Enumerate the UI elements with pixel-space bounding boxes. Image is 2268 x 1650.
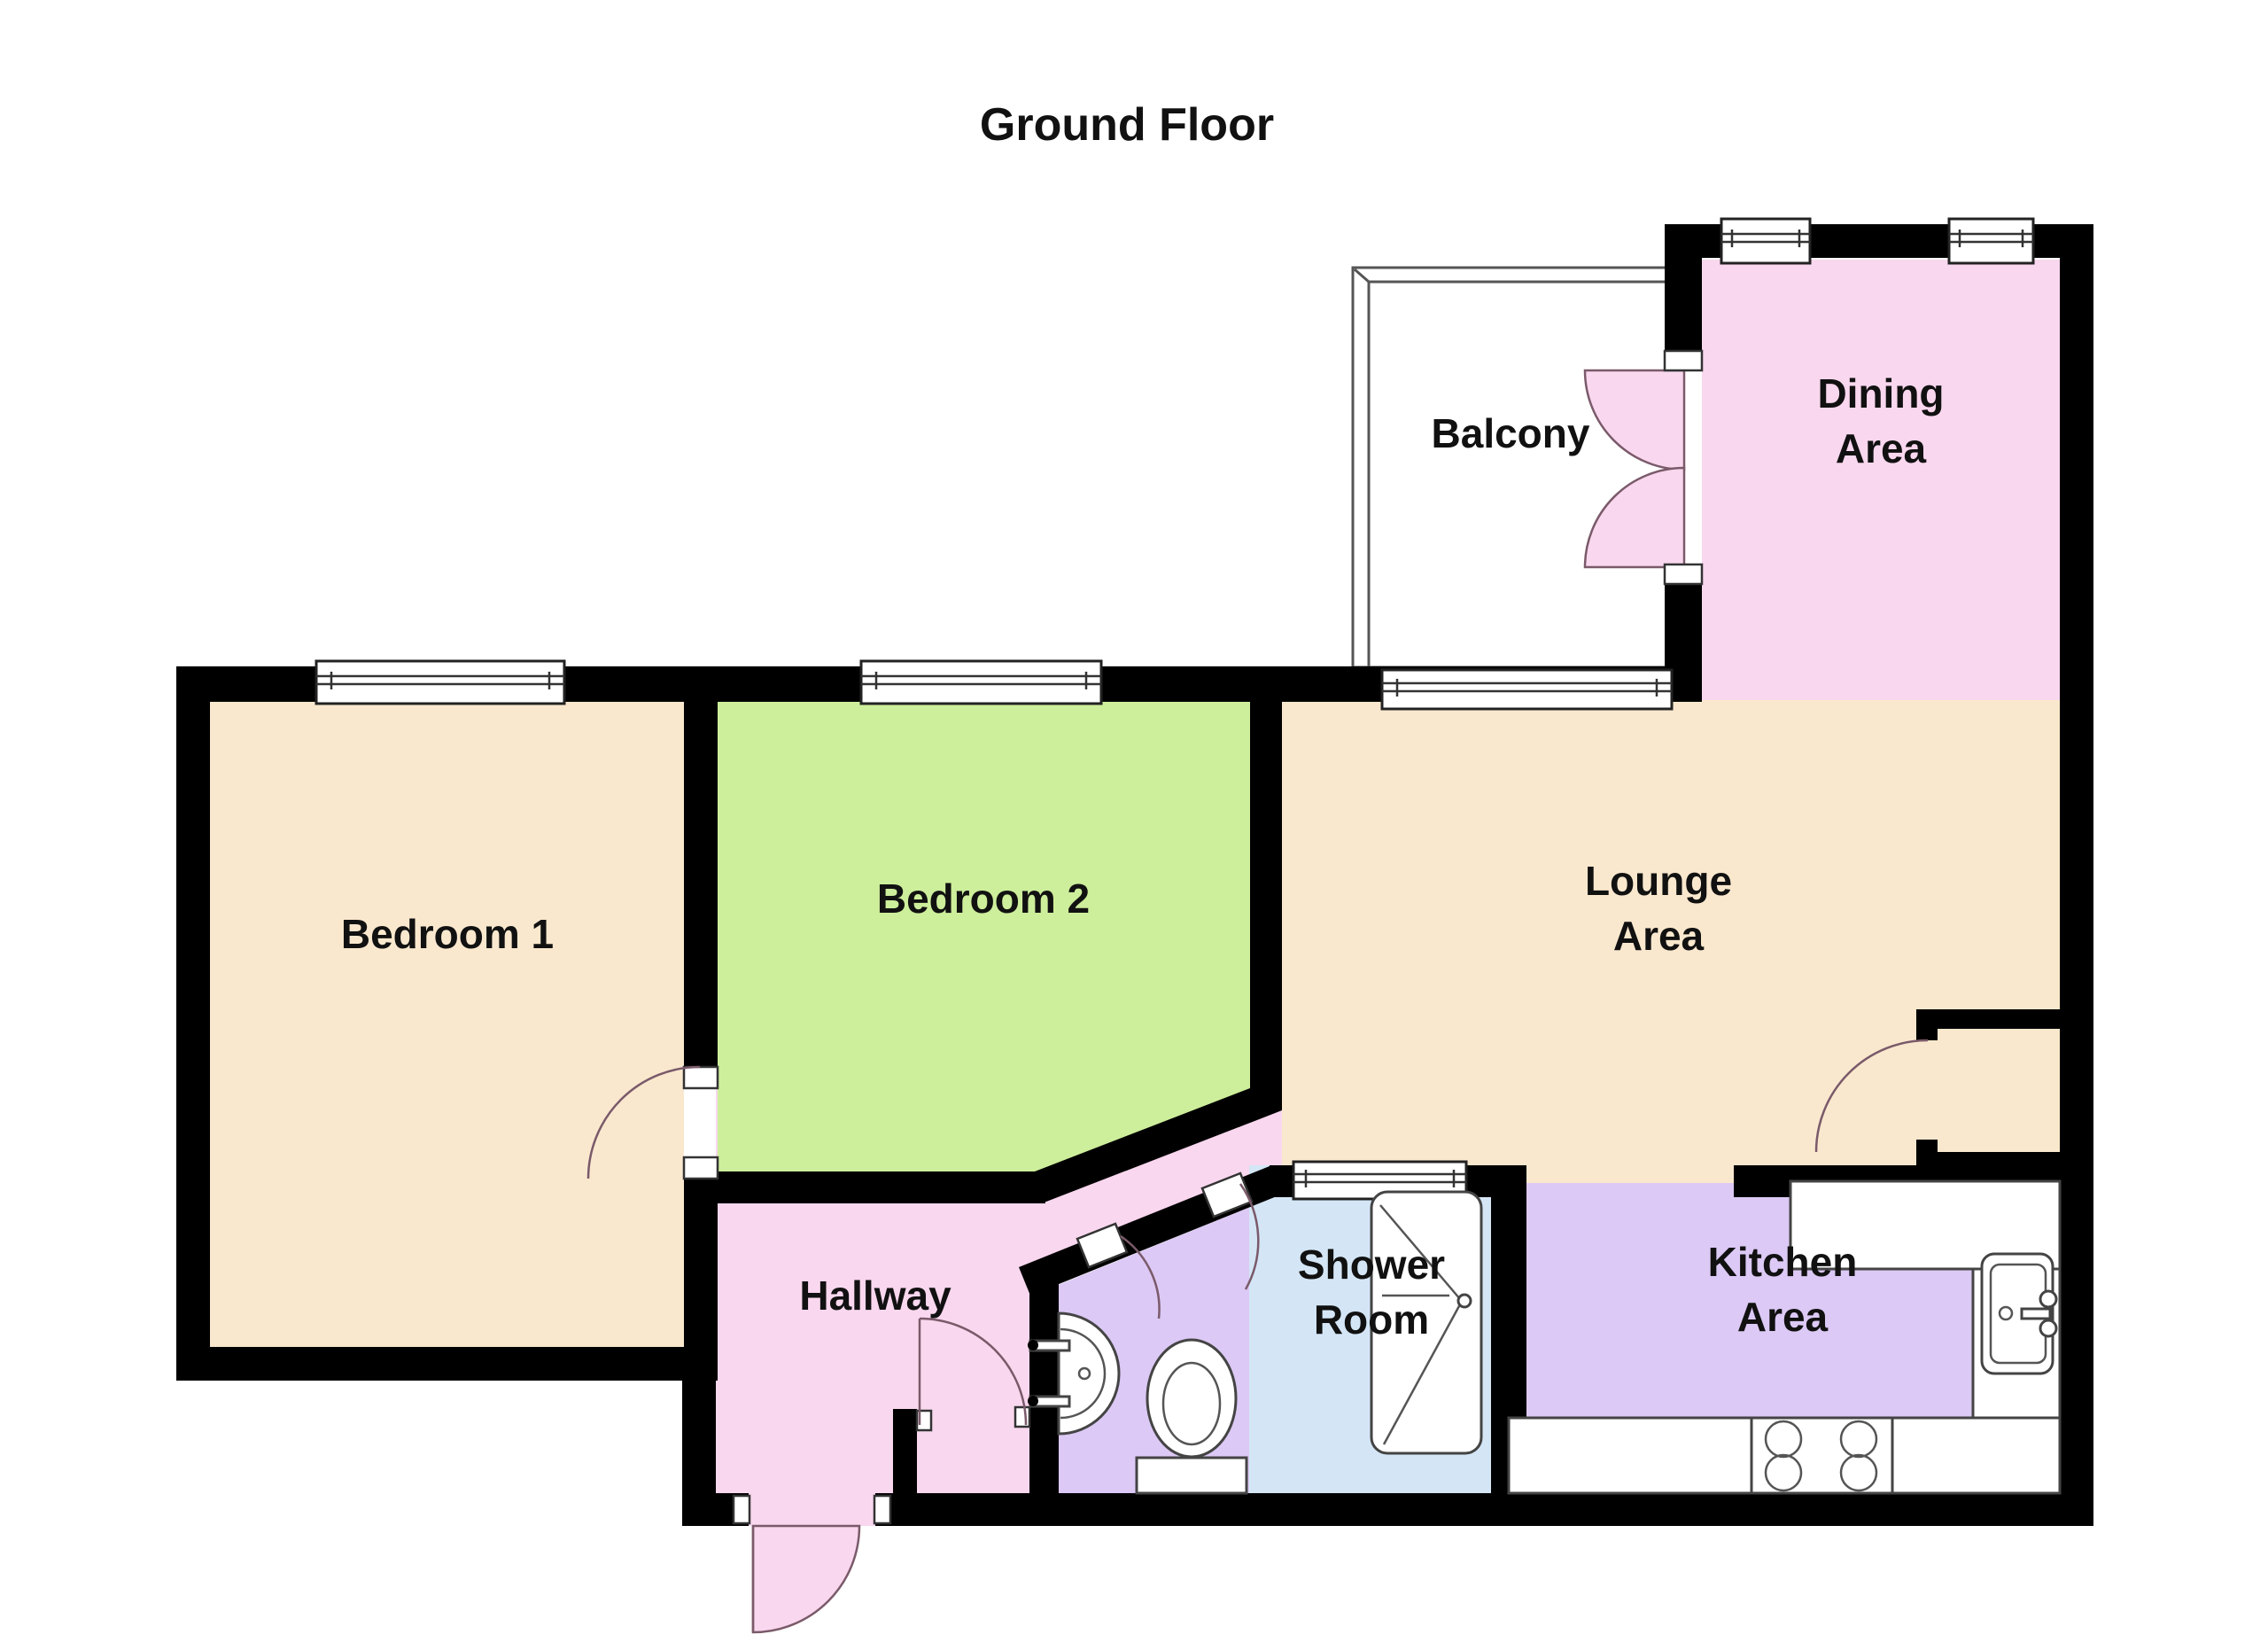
balcony-label: Balcony [1432,410,1590,456]
bedroom2-window [861,661,1101,704]
bedroom2-label: Bedroom 2 [877,876,1090,922]
shower-label-line1: Shower [1298,1241,1445,1288]
dining-label-line2: Area [1836,425,1927,471]
lounge-label-line1: Lounge [1585,858,1732,904]
bedroom1-floor [210,700,684,1347]
bedroom2-floor [718,700,1250,1171]
lounge-label-line2: Area [1613,913,1705,959]
dining-window-left [1721,219,1810,263]
floor-plan-page: Ground Floor Bedroom 1 Bedroom 2 Lounge … [0,0,2268,1650]
dining-window-right [1949,219,2033,263]
shower-label-line2: Room [1314,1296,1429,1343]
kitchen-label-line1: Kitchen [1708,1239,1858,1285]
lounge-window [1382,670,1672,709]
bedroom1-window [316,661,564,704]
balcony-structure [1353,268,1672,667]
hallway-label: Hallway [799,1273,951,1319]
dining-label-line1: Dining [1817,370,1944,416]
kitchen-label-line2: Area [1737,1294,1829,1340]
hob-icon [1751,1418,1892,1493]
dining-area-floor [1702,260,2060,700]
bedroom1-label: Bedroom 1 [341,911,554,957]
sink-icon [1982,1254,2056,1374]
page-title: Ground Floor [980,99,1274,151]
floor-plan-drawing: Ground Floor Bedroom 1 Bedroom 2 Lounge … [0,0,2268,1650]
